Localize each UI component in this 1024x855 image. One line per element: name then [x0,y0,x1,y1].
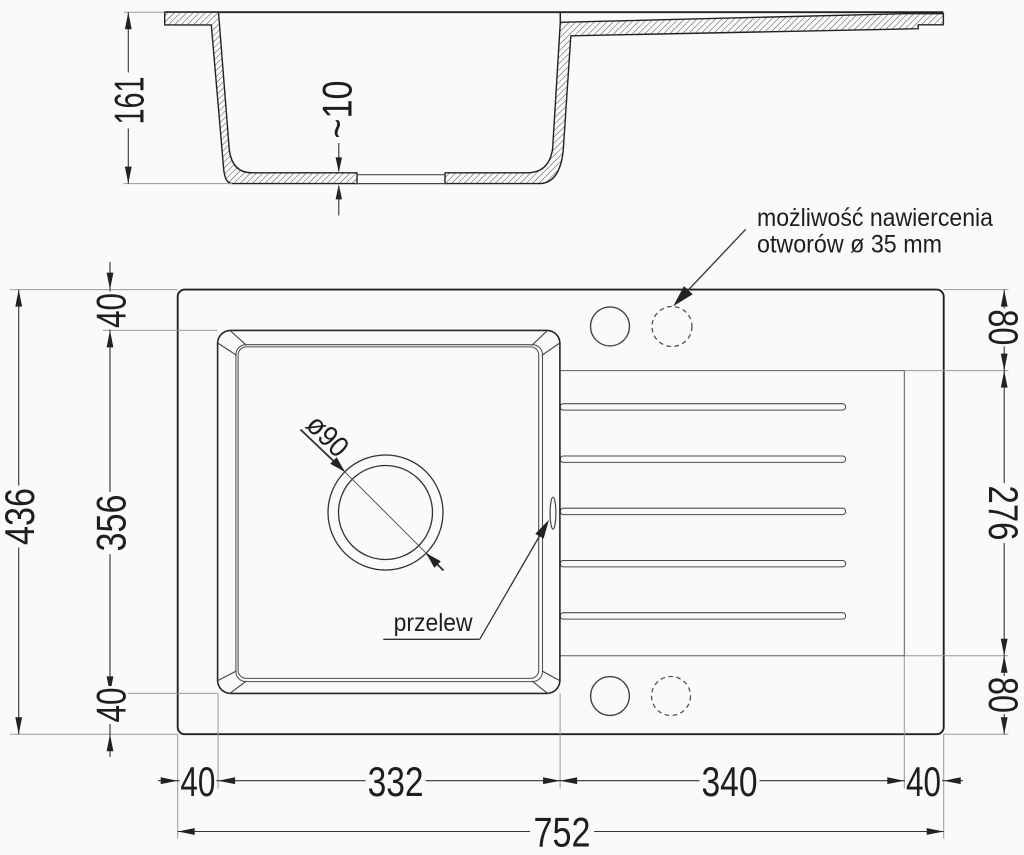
svg-text:możliwość nawiercenia: możliwość nawiercenia [757,204,993,232]
svg-text:~10: ~10 [314,81,361,139]
svg-text:przelew: przelew [394,609,474,637]
svg-text:40: 40 [180,758,215,805]
svg-text:752: 752 [534,809,591,855]
svg-text:276: 276 [980,486,1024,541]
svg-text:otworów ø 35 mm: otworów ø 35 mm [757,231,942,259]
svg-text:436: 436 [0,488,43,545]
svg-text:40: 40 [88,688,135,723]
svg-text:161: 161 [105,77,152,125]
svg-text:332: 332 [368,758,424,805]
svg-text:356: 356 [88,495,135,552]
svg-text:40: 40 [88,293,135,328]
svg-text:340: 340 [702,758,758,805]
svg-text:80: 80 [980,677,1024,713]
svg-text:80: 80 [980,309,1024,345]
svg-text:40: 40 [906,758,941,805]
